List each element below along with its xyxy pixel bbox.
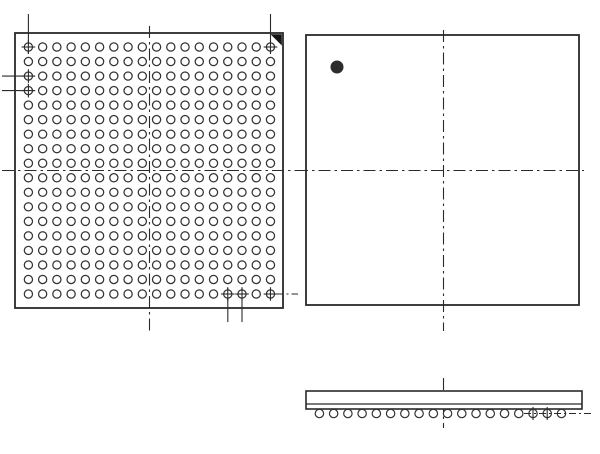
solder-ball bbox=[195, 188, 203, 196]
solder-ball bbox=[24, 145, 32, 153]
solder-ball bbox=[167, 43, 175, 51]
solder-ball bbox=[238, 43, 246, 51]
solder-ball bbox=[124, 290, 132, 298]
solder-ball bbox=[152, 174, 160, 182]
solder-ball bbox=[81, 43, 89, 51]
solder-ball bbox=[167, 174, 175, 182]
package-drawing-page bbox=[0, 0, 600, 454]
solder-ball bbox=[209, 246, 217, 254]
solder-ball bbox=[238, 203, 246, 211]
solder-ball bbox=[238, 72, 246, 80]
solder-ball bbox=[152, 101, 160, 109]
solder-ball bbox=[209, 203, 217, 211]
solder-ball bbox=[167, 261, 175, 269]
solder-ball bbox=[238, 116, 246, 124]
solder-ball bbox=[167, 217, 175, 225]
solder-ball bbox=[24, 290, 32, 298]
solder-ball bbox=[81, 275, 89, 283]
solder-ball bbox=[96, 130, 104, 138]
solder-ball bbox=[152, 43, 160, 51]
solder-ball bbox=[96, 290, 104, 298]
solder-ball bbox=[24, 261, 32, 269]
solder-ball bbox=[39, 174, 47, 182]
solder-ball bbox=[110, 43, 118, 51]
solder-ball bbox=[224, 217, 232, 225]
solder-ball bbox=[110, 174, 118, 182]
solder-ball bbox=[224, 188, 232, 196]
solder-ball bbox=[24, 232, 32, 240]
solder-ball bbox=[138, 217, 146, 225]
solder-ball bbox=[138, 232, 146, 240]
solder-ball bbox=[152, 275, 160, 283]
solder-ball bbox=[81, 290, 89, 298]
solder-ball bbox=[224, 72, 232, 80]
solder-ball bbox=[266, 57, 274, 65]
solder-ball bbox=[152, 159, 160, 167]
solder-ball bbox=[252, 246, 260, 254]
solder-ball bbox=[152, 116, 160, 124]
solder-ball bbox=[238, 101, 246, 109]
solder-ball bbox=[252, 174, 260, 182]
solder-ball bbox=[81, 86, 89, 94]
solder-ball bbox=[67, 86, 75, 94]
solder-ball bbox=[209, 290, 217, 298]
solder-ball bbox=[266, 188, 274, 196]
solder-ball bbox=[124, 174, 132, 182]
solder-ball bbox=[53, 275, 61, 283]
solder-ball bbox=[96, 275, 104, 283]
solder-ball bbox=[96, 203, 104, 211]
solder-ball bbox=[24, 116, 32, 124]
solder-ball bbox=[238, 57, 246, 65]
solder-ball bbox=[167, 203, 175, 211]
solder-ball bbox=[152, 188, 160, 196]
solder-ball bbox=[81, 130, 89, 138]
solder-ball bbox=[110, 145, 118, 153]
solder-ball bbox=[138, 130, 146, 138]
solder-ball bbox=[138, 116, 146, 124]
solder-ball bbox=[39, 57, 47, 65]
solder-ball bbox=[96, 116, 104, 124]
solder-ball bbox=[195, 43, 203, 51]
solder-ball bbox=[195, 101, 203, 109]
solder-ball bbox=[39, 130, 47, 138]
solder-ball bbox=[252, 159, 260, 167]
solder-ball bbox=[209, 116, 217, 124]
solder-ball bbox=[195, 159, 203, 167]
solder-ball bbox=[224, 232, 232, 240]
solder-ball bbox=[181, 217, 189, 225]
solder-ball bbox=[238, 261, 246, 269]
solder-ball bbox=[81, 72, 89, 80]
solder-ball bbox=[195, 145, 203, 153]
solder-ball bbox=[266, 72, 274, 80]
solder-ball bbox=[152, 130, 160, 138]
solder-ball bbox=[96, 188, 104, 196]
solder-ball bbox=[67, 174, 75, 182]
solder-ball bbox=[96, 72, 104, 80]
solder-ball bbox=[181, 290, 189, 298]
solder-ball bbox=[24, 130, 32, 138]
solder-ball bbox=[53, 130, 61, 138]
solder-ball bbox=[181, 159, 189, 167]
solder-ball bbox=[81, 101, 89, 109]
solder-ball bbox=[110, 116, 118, 124]
solder-ball bbox=[209, 57, 217, 65]
solder-ball bbox=[53, 203, 61, 211]
solder-ball bbox=[124, 261, 132, 269]
solder-ball bbox=[124, 43, 132, 51]
solder-ball bbox=[181, 145, 189, 153]
solder-ball bbox=[167, 159, 175, 167]
solder-ball bbox=[209, 72, 217, 80]
solder-ball bbox=[67, 43, 75, 51]
solder-ball bbox=[53, 86, 61, 94]
solder-ball bbox=[96, 174, 104, 182]
solder-ball bbox=[252, 232, 260, 240]
solder-ball bbox=[209, 174, 217, 182]
solder-ball bbox=[39, 275, 47, 283]
solder-ball bbox=[152, 203, 160, 211]
solder-ball bbox=[181, 203, 189, 211]
solder-ball bbox=[209, 261, 217, 269]
solder-ball bbox=[152, 261, 160, 269]
solder-ball bbox=[110, 101, 118, 109]
solder-ball bbox=[110, 57, 118, 65]
solder-ball bbox=[266, 246, 274, 254]
solder-ball bbox=[224, 101, 232, 109]
solder-ball bbox=[181, 72, 189, 80]
solder-ball bbox=[124, 101, 132, 109]
solder-ball bbox=[152, 57, 160, 65]
solder-ball bbox=[138, 174, 146, 182]
solder-ball bbox=[24, 159, 32, 167]
solder-ball bbox=[124, 57, 132, 65]
solder-ball bbox=[67, 145, 75, 153]
solder-ball bbox=[24, 217, 32, 225]
solder-ball bbox=[138, 86, 146, 94]
solder-ball bbox=[39, 86, 47, 94]
solder-ball bbox=[152, 217, 160, 225]
solder-ball bbox=[53, 290, 61, 298]
solder-ball bbox=[53, 174, 61, 182]
solder-ball bbox=[53, 116, 61, 124]
solder-ball bbox=[67, 290, 75, 298]
solder-ball bbox=[39, 261, 47, 269]
solder-ball bbox=[138, 188, 146, 196]
solder-ball bbox=[81, 203, 89, 211]
solder-ball bbox=[238, 159, 246, 167]
solder-ball bbox=[152, 232, 160, 240]
package-top-view bbox=[296, 30, 584, 331]
solder-ball bbox=[39, 203, 47, 211]
solder-ball bbox=[138, 159, 146, 167]
solder-ball bbox=[24, 57, 32, 65]
solder-ball bbox=[96, 246, 104, 254]
solder-ball bbox=[24, 101, 32, 109]
solder-ball bbox=[39, 232, 47, 240]
solder-ball bbox=[67, 261, 75, 269]
solder-ball bbox=[224, 43, 232, 51]
solder-ball bbox=[67, 203, 75, 211]
solder-ball bbox=[110, 72, 118, 80]
solder-ball bbox=[24, 188, 32, 196]
solder-ball bbox=[181, 116, 189, 124]
solder-ball bbox=[209, 217, 217, 225]
solder-ball bbox=[124, 232, 132, 240]
solder-ball bbox=[224, 130, 232, 138]
solder-ball bbox=[110, 232, 118, 240]
solder-ball bbox=[209, 275, 217, 283]
solder-ball bbox=[110, 130, 118, 138]
package-drawing-canvas bbox=[0, 0, 600, 454]
solder-ball bbox=[181, 275, 189, 283]
solder-ball bbox=[67, 217, 75, 225]
solder-ball bbox=[181, 101, 189, 109]
solder-ball bbox=[53, 188, 61, 196]
solder-ball bbox=[124, 130, 132, 138]
solder-ball bbox=[238, 275, 246, 283]
solder-ball bbox=[110, 188, 118, 196]
solder-ball bbox=[224, 145, 232, 153]
solder-ball bbox=[252, 101, 260, 109]
solder-ball bbox=[81, 159, 89, 167]
solder-ball bbox=[224, 116, 232, 124]
solder-ball bbox=[110, 159, 118, 167]
solder-ball bbox=[124, 246, 132, 254]
solder-ball bbox=[238, 145, 246, 153]
solder-ball bbox=[252, 116, 260, 124]
solder-ball bbox=[238, 217, 246, 225]
solder-ball bbox=[167, 116, 175, 124]
solder-ball bbox=[238, 86, 246, 94]
solder-ball bbox=[266, 174, 274, 182]
solder-ball bbox=[238, 246, 246, 254]
pin1-marker-dot bbox=[331, 61, 344, 74]
solder-ball bbox=[167, 188, 175, 196]
solder-ball bbox=[195, 203, 203, 211]
solder-ball bbox=[252, 261, 260, 269]
solder-ball bbox=[209, 232, 217, 240]
solder-ball bbox=[195, 261, 203, 269]
solder-ball bbox=[252, 275, 260, 283]
solder-ball bbox=[39, 43, 47, 51]
solder-ball bbox=[238, 188, 246, 196]
solder-ball bbox=[96, 43, 104, 51]
solder-ball bbox=[39, 72, 47, 80]
solder-ball bbox=[24, 203, 32, 211]
solder-ball bbox=[252, 203, 260, 211]
solder-ball bbox=[110, 290, 118, 298]
solder-ball bbox=[167, 130, 175, 138]
solder-ball bbox=[209, 145, 217, 153]
solder-ball bbox=[266, 101, 274, 109]
solder-ball bbox=[96, 101, 104, 109]
solder-ball bbox=[181, 130, 189, 138]
solder-ball bbox=[167, 57, 175, 65]
solder-ball bbox=[24, 174, 32, 182]
solder-ball bbox=[53, 72, 61, 80]
solder-ball bbox=[124, 217, 132, 225]
solder-ball bbox=[67, 232, 75, 240]
solder-ball bbox=[81, 188, 89, 196]
solder-ball bbox=[266, 159, 274, 167]
solder-ball bbox=[124, 159, 132, 167]
solder-ball bbox=[195, 232, 203, 240]
solder-ball bbox=[195, 174, 203, 182]
solder-ball bbox=[81, 57, 89, 65]
solder-ball bbox=[238, 174, 246, 182]
solder-ball bbox=[67, 275, 75, 283]
solder-ball bbox=[138, 275, 146, 283]
solder-ball bbox=[181, 86, 189, 94]
solder-ball bbox=[224, 86, 232, 94]
solder-ball bbox=[266, 261, 274, 269]
solder-ball bbox=[138, 203, 146, 211]
solder-ball bbox=[181, 174, 189, 182]
solder-ball bbox=[138, 261, 146, 269]
solder-ball bbox=[266, 116, 274, 124]
solder-ball bbox=[39, 101, 47, 109]
solder-ball bbox=[67, 188, 75, 196]
solder-ball bbox=[152, 86, 160, 94]
solder-ball bbox=[252, 145, 260, 153]
solder-ball bbox=[124, 72, 132, 80]
solder-ball bbox=[39, 188, 47, 196]
solder-ball bbox=[53, 57, 61, 65]
solder-ball bbox=[138, 72, 146, 80]
solder-ball bbox=[181, 57, 189, 65]
solder-ball bbox=[224, 203, 232, 211]
solder-ball bbox=[252, 57, 260, 65]
solder-ball bbox=[195, 57, 203, 65]
solder-ball bbox=[209, 159, 217, 167]
solder-ball bbox=[138, 290, 146, 298]
solder-ball bbox=[53, 101, 61, 109]
solder-ball bbox=[53, 246, 61, 254]
solder-ball bbox=[53, 43, 61, 51]
solder-ball bbox=[209, 86, 217, 94]
solder-ball bbox=[266, 86, 274, 94]
solder-ball bbox=[96, 57, 104, 65]
solder-ball bbox=[24, 275, 32, 283]
solder-ball bbox=[81, 174, 89, 182]
solder-ball bbox=[110, 275, 118, 283]
solder-ball bbox=[67, 130, 75, 138]
solder-ball bbox=[124, 203, 132, 211]
solder-ball bbox=[67, 116, 75, 124]
solder-ball bbox=[195, 275, 203, 283]
solder-ball bbox=[195, 72, 203, 80]
solder-ball bbox=[96, 232, 104, 240]
solder-ball bbox=[67, 57, 75, 65]
solder-ball bbox=[96, 261, 104, 269]
solder-ball bbox=[67, 72, 75, 80]
solder-ball bbox=[152, 72, 160, 80]
solder-ball bbox=[138, 57, 146, 65]
solder-ball bbox=[252, 217, 260, 225]
solder-ball bbox=[252, 43, 260, 51]
solder-ball bbox=[96, 86, 104, 94]
solder-ball bbox=[110, 203, 118, 211]
solder-ball bbox=[24, 246, 32, 254]
solder-ball bbox=[224, 246, 232, 254]
solder-ball bbox=[81, 232, 89, 240]
solder-ball bbox=[67, 159, 75, 167]
solder-ball bbox=[81, 261, 89, 269]
solder-ball bbox=[53, 232, 61, 240]
solder-ball bbox=[209, 101, 217, 109]
solder-ball bbox=[138, 246, 146, 254]
solder-ball bbox=[110, 217, 118, 225]
solder-ball bbox=[152, 145, 160, 153]
solder-ball bbox=[195, 130, 203, 138]
solder-ball bbox=[181, 232, 189, 240]
solder-ball bbox=[39, 290, 47, 298]
solder-ball bbox=[110, 86, 118, 94]
solder-ball bbox=[181, 188, 189, 196]
solder-ball bbox=[266, 203, 274, 211]
solder-ball bbox=[81, 217, 89, 225]
solder-ball bbox=[124, 275, 132, 283]
solder-ball bbox=[39, 116, 47, 124]
solder-ball bbox=[96, 145, 104, 153]
solder-ball bbox=[39, 217, 47, 225]
solder-ball bbox=[124, 188, 132, 196]
solder-ball bbox=[266, 130, 274, 138]
solder-ball bbox=[167, 72, 175, 80]
solder-ball bbox=[181, 261, 189, 269]
solder-ball bbox=[152, 246, 160, 254]
solder-ball bbox=[224, 57, 232, 65]
solder-ball bbox=[138, 145, 146, 153]
solder-ball bbox=[252, 72, 260, 80]
solder-ball bbox=[81, 246, 89, 254]
solder-ball bbox=[252, 188, 260, 196]
solder-ball bbox=[252, 86, 260, 94]
solder-ball bbox=[81, 145, 89, 153]
solder-ball bbox=[167, 232, 175, 240]
solder-ball bbox=[209, 43, 217, 51]
solder-ball bbox=[224, 174, 232, 182]
solder-ball bbox=[181, 43, 189, 51]
solder-ball bbox=[67, 101, 75, 109]
solder-ball bbox=[152, 290, 160, 298]
solder-ball bbox=[238, 232, 246, 240]
solder-ball bbox=[167, 145, 175, 153]
solder-ball bbox=[167, 275, 175, 283]
solder-ball bbox=[167, 86, 175, 94]
solder-ball bbox=[39, 246, 47, 254]
solder-ball bbox=[53, 145, 61, 153]
solder-ball bbox=[124, 86, 132, 94]
solder-ball bbox=[167, 246, 175, 254]
solder-ball bbox=[67, 246, 75, 254]
solder-ball bbox=[53, 159, 61, 167]
solder-ball bbox=[252, 130, 260, 138]
solder-ball bbox=[195, 290, 203, 298]
solder-ball bbox=[96, 159, 104, 167]
solder-ball bbox=[224, 275, 232, 283]
solder-ball bbox=[138, 101, 146, 109]
solder-ball bbox=[39, 145, 47, 153]
solder-ball bbox=[195, 86, 203, 94]
solder-ball bbox=[96, 217, 104, 225]
solder-ball bbox=[181, 246, 189, 254]
solder-ball bbox=[110, 246, 118, 254]
solder-ball bbox=[266, 232, 274, 240]
solder-ball bbox=[209, 130, 217, 138]
